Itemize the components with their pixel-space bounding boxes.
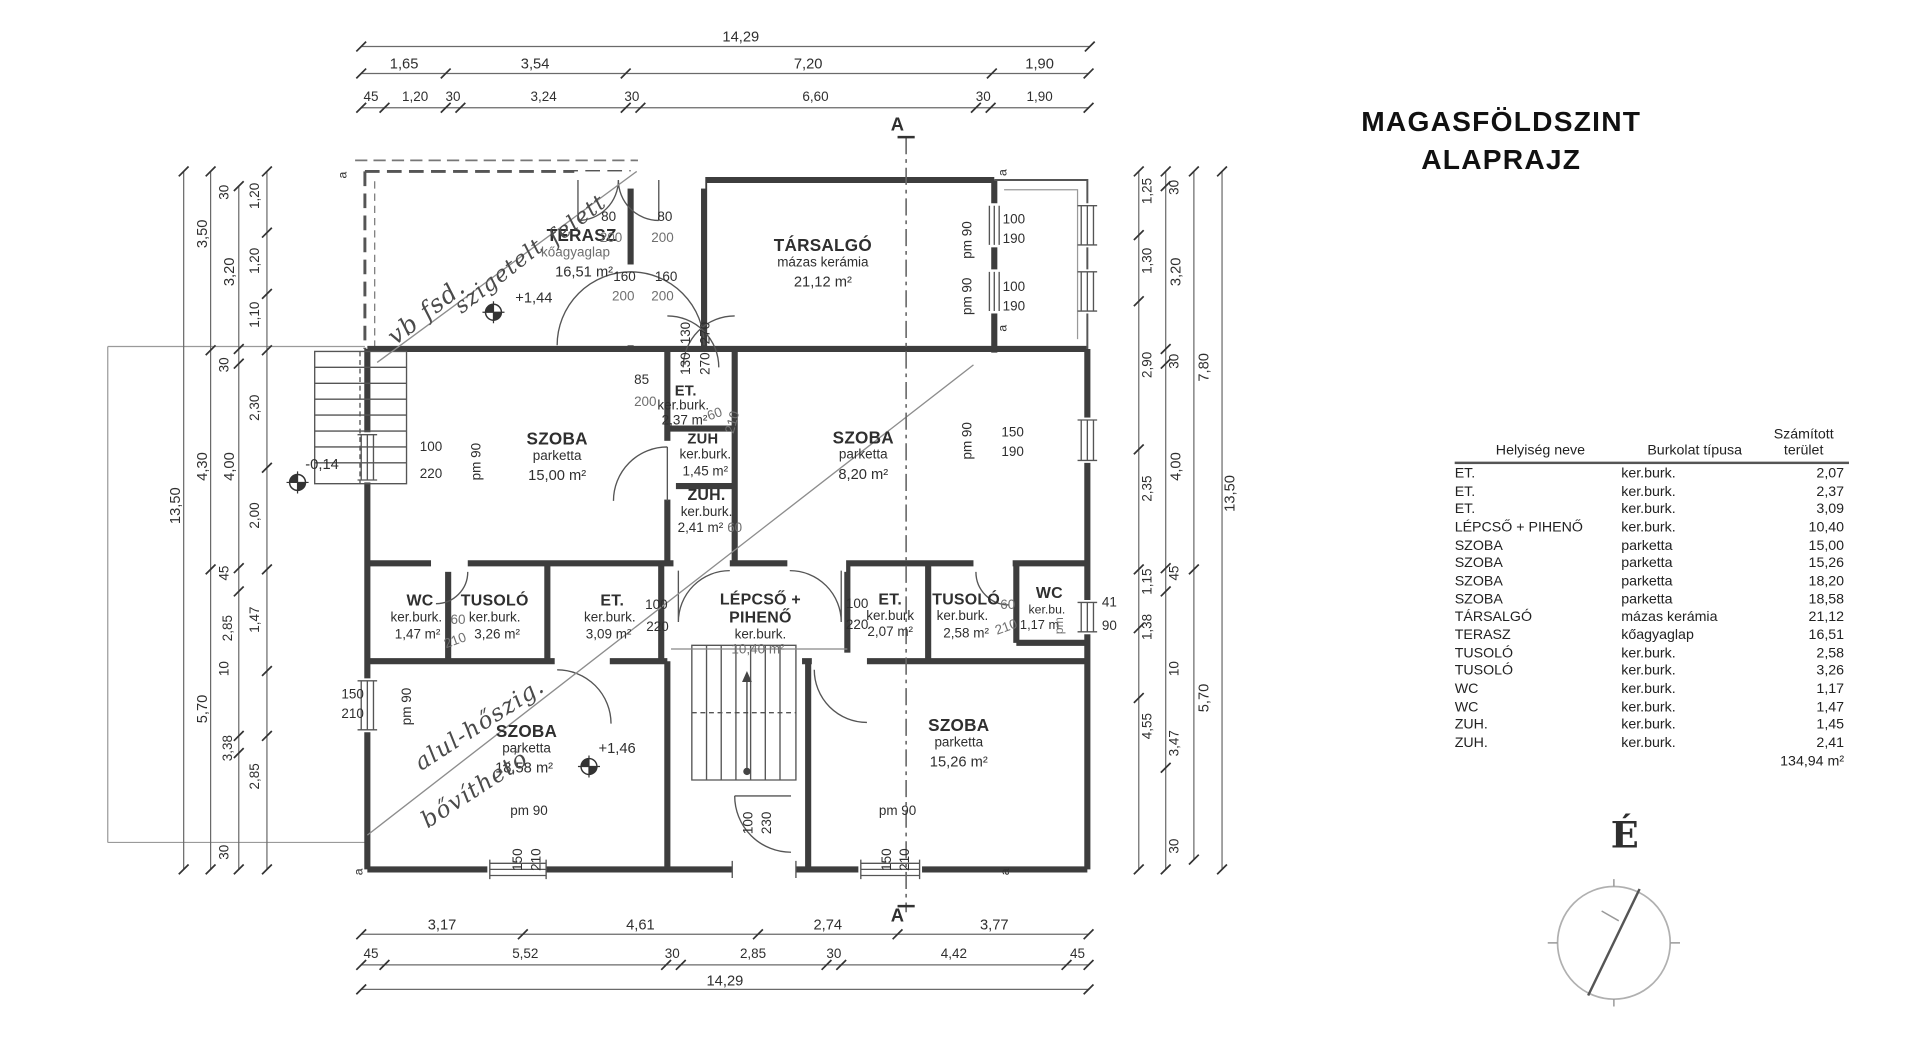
table-cell-type: ker.burk. bbox=[1621, 501, 1765, 517]
table-cell-area: 2,37 bbox=[1766, 483, 1844, 499]
table-cell-type: ker.burk. bbox=[1621, 681, 1765, 697]
table-cell-type: ker.burk. bbox=[1621, 483, 1765, 499]
table-row: LÉPCSŐ + PIHENŐker.burk.10,40 bbox=[1455, 518, 1849, 536]
stairs-exterior bbox=[315, 351, 407, 483]
table-cell-area: 16,51 bbox=[1766, 627, 1844, 643]
compass bbox=[1548, 879, 1680, 1006]
table-cell-name: TERASZ bbox=[1455, 627, 1622, 643]
area-table-body: ET.ker.burk.2,07ET.ker.burk.2,37ET.ker.b… bbox=[1455, 464, 1849, 752]
table-row: ZUH.ker.burk.2,41 bbox=[1455, 734, 1849, 752]
table-cell-name: SZOBA bbox=[1455, 591, 1622, 607]
table-cell-name: WC bbox=[1455, 681, 1622, 697]
table-cell-area: 21,12 bbox=[1766, 609, 1844, 625]
table-cell-name: SZOBA bbox=[1455, 555, 1622, 571]
table-cell-name: SZOBA bbox=[1455, 537, 1622, 553]
table-cell-name: TUSOLÓ bbox=[1455, 663, 1622, 679]
table-cell-name: LÉPCSŐ + PIHENŐ bbox=[1455, 519, 1622, 535]
table-cell-type: kőagyaglap bbox=[1621, 627, 1765, 643]
table-cell-name: ET. bbox=[1455, 483, 1622, 499]
door-arcs bbox=[436, 180, 1009, 852]
table-row: ET.ker.burk.2,37 bbox=[1455, 482, 1849, 500]
table-cell-type: ker.burk. bbox=[1621, 519, 1765, 535]
area-table: Helyiség neve Burkolat típusa Számított … bbox=[1455, 426, 1849, 769]
table-row: TÁRSALGÓmázas kerámia21,12 bbox=[1455, 608, 1849, 626]
table-cell-type: parketta bbox=[1621, 537, 1765, 553]
table-cell-area: 1,47 bbox=[1766, 699, 1844, 715]
table-cell-type: ker.burk. bbox=[1621, 663, 1765, 679]
header-floor-type: Burkolat típusa bbox=[1626, 442, 1763, 458]
table-cell-area: 1,17 bbox=[1766, 681, 1844, 697]
table-cell-type: mázas kerámia bbox=[1621, 609, 1765, 625]
table-cell-type: parketta bbox=[1621, 555, 1765, 571]
table-row: TERASZkőagyaglap16,51 bbox=[1455, 626, 1849, 644]
table-row: TUSOLÓker.burk.2,58 bbox=[1455, 644, 1849, 662]
table-cell-area: 15,00 bbox=[1766, 537, 1844, 553]
page-title-line1: MAGASFÖLDSZINT bbox=[1261, 103, 1741, 141]
table-row: ZUH.ker.burk.1,45 bbox=[1455, 716, 1849, 734]
table-cell-area: 15,26 bbox=[1766, 555, 1844, 571]
table-row: ET.ker.burk.3,09 bbox=[1455, 500, 1849, 518]
header-room-name: Helyiség neve bbox=[1455, 442, 1626, 458]
table-cell-type: ker.burk. bbox=[1621, 717, 1765, 733]
table-row: WCker.burk.1,17 bbox=[1455, 680, 1849, 698]
table-cell-area: 1,45 bbox=[1766, 717, 1844, 733]
table-cell-area: 2,07 bbox=[1766, 465, 1844, 481]
table-row: SZOBAparketta15,00 bbox=[1455, 536, 1849, 554]
table-cell-name: ZUH. bbox=[1455, 735, 1622, 751]
title-block: MAGASFÖLDSZINT ALAPRAJZ bbox=[1261, 103, 1741, 179]
table-row: SZOBAparketta18,58 bbox=[1455, 590, 1849, 608]
table-cell-type: parketta bbox=[1621, 573, 1765, 589]
table-cell-type: ker.burk. bbox=[1621, 645, 1765, 661]
table-cell-name: TUSOLÓ bbox=[1455, 645, 1622, 661]
header-area: Számított terület bbox=[1763, 426, 1844, 458]
table-cell-name: ET. bbox=[1455, 501, 1622, 517]
table-cell-area: 2,41 bbox=[1766, 735, 1844, 751]
window-symbols bbox=[358, 206, 1098, 879]
table-cell-name: TÁRSALGÓ bbox=[1455, 609, 1622, 625]
area-table-header: Helyiség neve Burkolat típusa Számított … bbox=[1455, 426, 1849, 464]
table-cell-area: 18,20 bbox=[1766, 573, 1844, 589]
table-row: SZOBAparketta15,26 bbox=[1455, 554, 1849, 572]
table-cell-area: 3,09 bbox=[1766, 501, 1844, 517]
table-cell-type: ker.burk. bbox=[1621, 699, 1765, 715]
table-cell-name: ET. bbox=[1455, 465, 1622, 481]
table-cell-area: 10,40 bbox=[1766, 519, 1844, 535]
table-cell-type: ker.burk. bbox=[1621, 465, 1765, 481]
table-cell-area: 3,26 bbox=[1766, 663, 1844, 679]
table-cell-name: ZUH. bbox=[1455, 717, 1622, 733]
stairs-interior bbox=[692, 645, 796, 780]
floor-plan-sheet: 14,291,653,547,201,90451,20303,24306,603… bbox=[0, 0, 1920, 1062]
page-title-line2: ALAPRAJZ bbox=[1261, 141, 1741, 179]
table-row: SZOBAparketta18,20 bbox=[1455, 572, 1849, 590]
table-row: TUSOLÓker.burk.3,26 bbox=[1455, 662, 1849, 680]
area-table-total-row: 134,94 m² bbox=[1455, 753, 1849, 769]
table-cell-name: SZOBA bbox=[1455, 573, 1622, 589]
total-area-value: 134,94 m² bbox=[1455, 753, 1844, 769]
table-cell-type: ker.burk. bbox=[1621, 735, 1765, 751]
table-cell-area: 2,58 bbox=[1766, 645, 1844, 661]
table-cell-area: 18,58 bbox=[1766, 591, 1844, 607]
table-row: WCker.burk.1,47 bbox=[1455, 698, 1849, 716]
table-cell-name: WC bbox=[1455, 699, 1622, 715]
table-row: ET.ker.burk.2,07 bbox=[1455, 464, 1849, 482]
table-cell-type: parketta bbox=[1621, 591, 1765, 607]
